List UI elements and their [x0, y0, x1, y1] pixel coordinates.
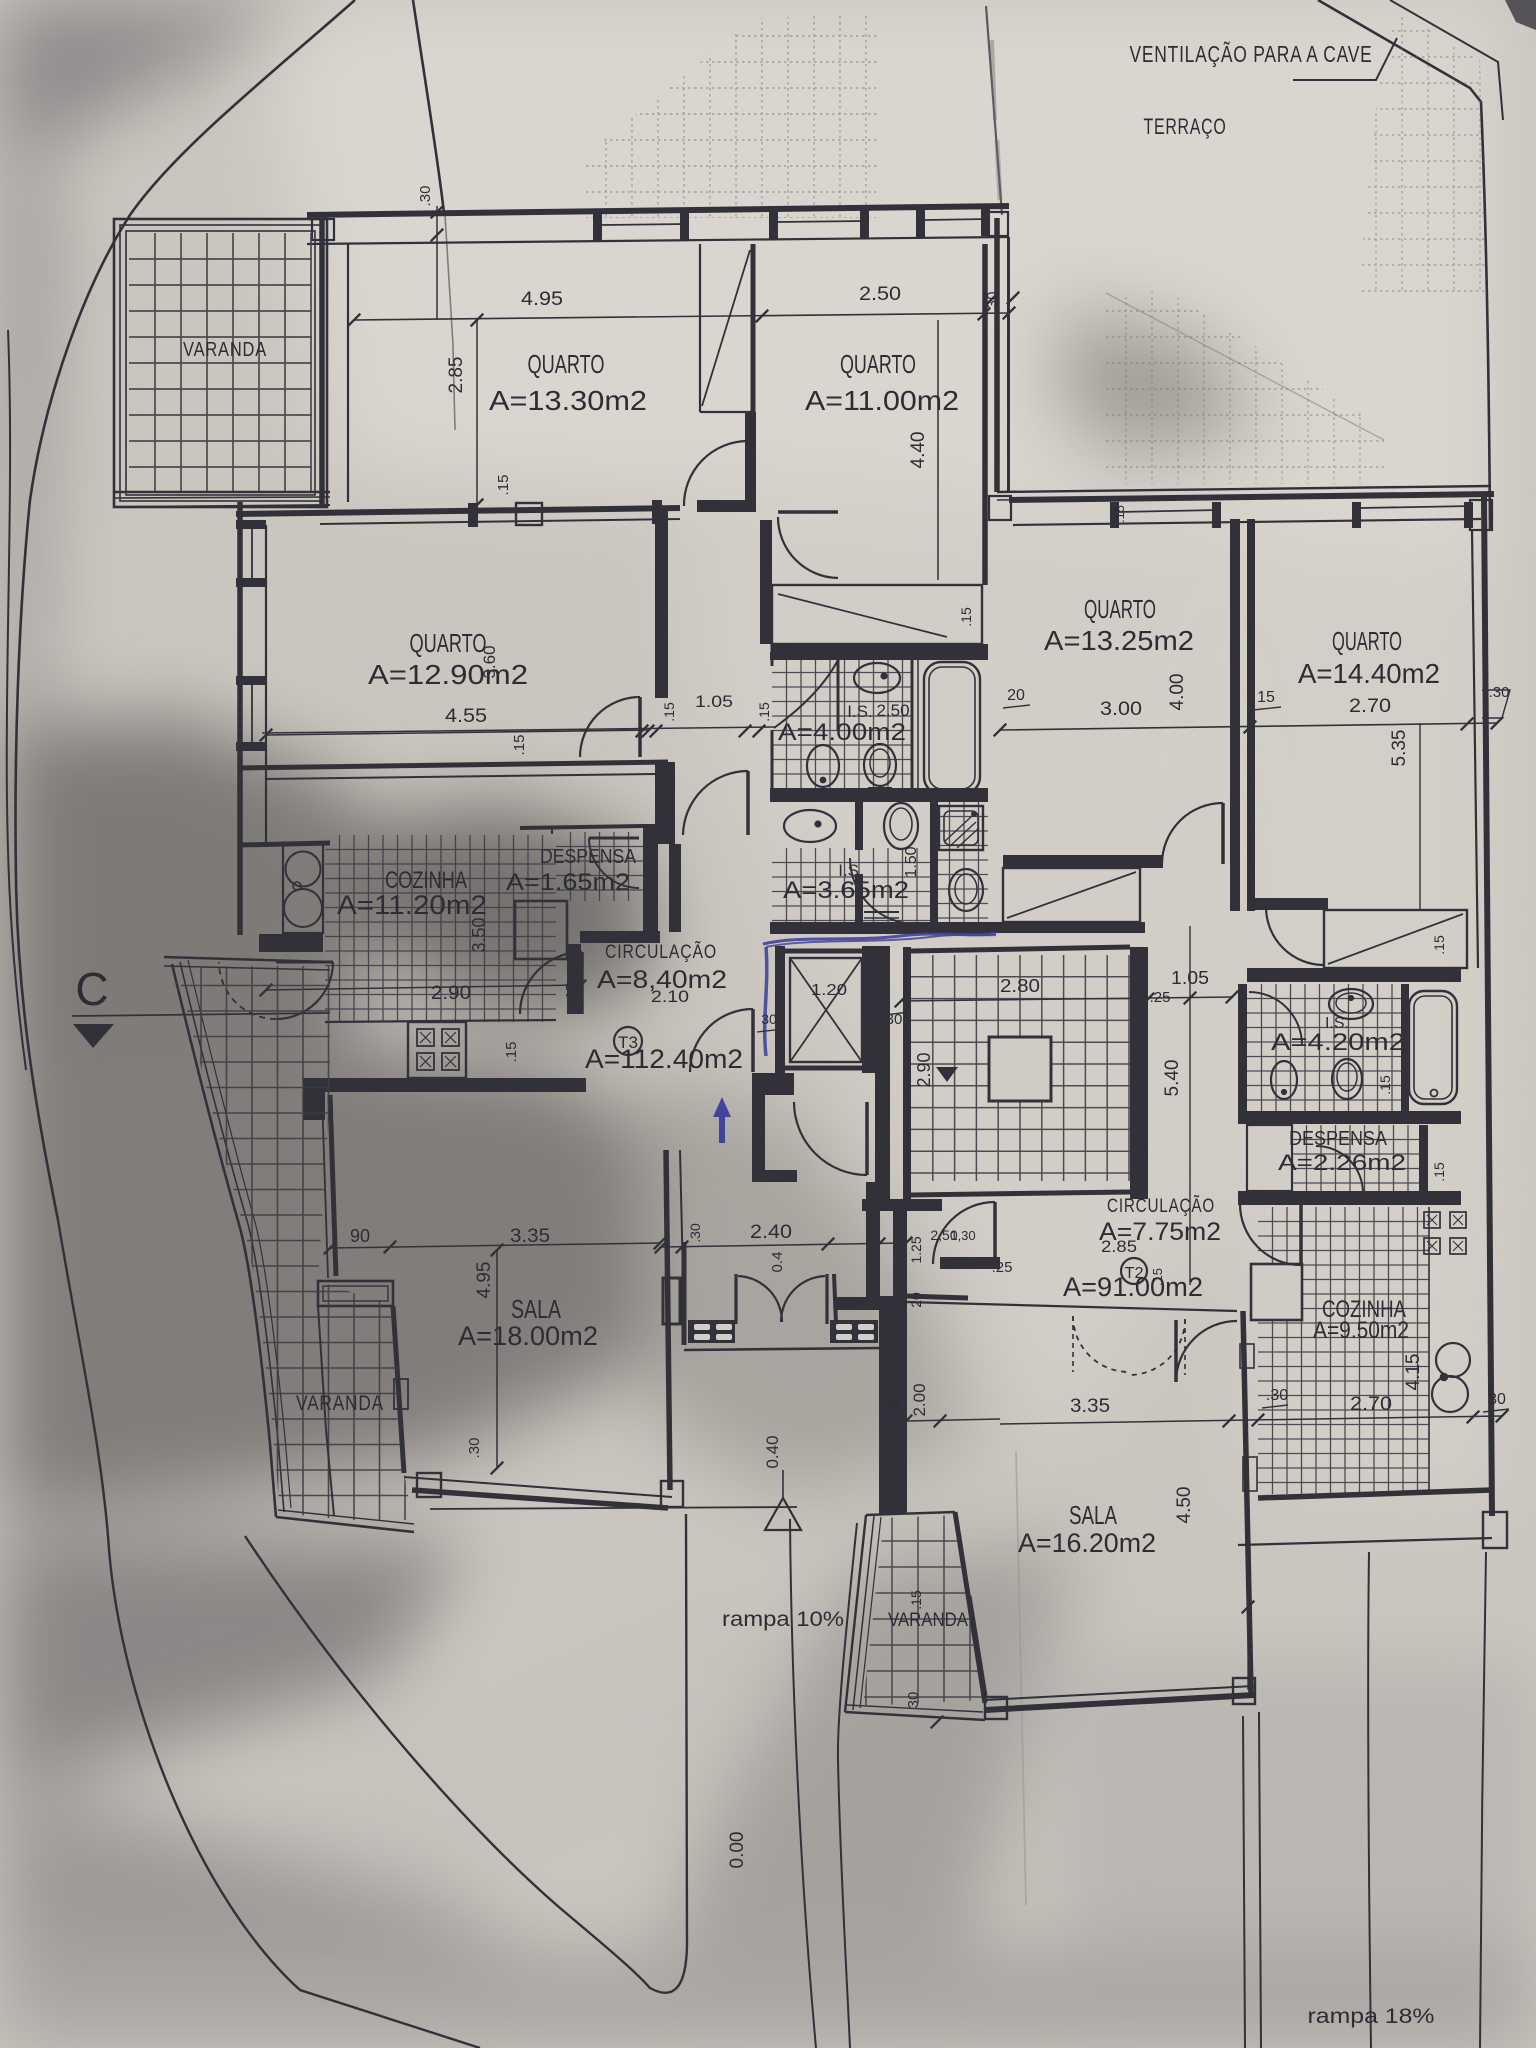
svg-text:A=16.20m2: A=16.20m2	[1018, 1528, 1156, 1558]
svg-text:30: 30	[886, 1396, 903, 1413]
svg-text:VENTILAÇÃO PARA A CAVE: VENTILAÇÃO PARA A CAVE	[1130, 41, 1373, 67]
svg-text:SALA: SALA	[1069, 1500, 1117, 1530]
svg-text:A=12.90m2: A=12.90m2	[368, 659, 528, 690]
svg-text:2.90: 2.90	[914, 1052, 934, 1087]
svg-text:2.85: 2.85	[1101, 1237, 1137, 1256]
svg-text:4.40: 4.40	[908, 432, 929, 469]
svg-text:.15: .15	[503, 1042, 520, 1063]
svg-text:2.70: 2.70	[1350, 1394, 1392, 1415]
svg-text:.25: .25	[1150, 989, 1171, 1006]
svg-text:.15: .15	[661, 702, 677, 722]
svg-text:3.60: 3.60	[480, 645, 499, 678]
svg-text:.15: .15	[958, 607, 974, 627]
svg-text:2.40: 2.40	[750, 1222, 792, 1243]
svg-text:4.95: 4.95	[521, 289, 563, 310]
svg-text:CIRCULAÇÃO: CIRCULAÇÃO	[605, 941, 717, 963]
svg-text:5.40: 5.40	[1162, 1060, 1183, 1097]
svg-text:2.00: 2.00	[910, 1383, 929, 1416]
svg-text:1.25: 1.25	[908, 1236, 924, 1263]
svg-text:QUARTO: QUARTO	[1332, 626, 1402, 656]
svg-text:3.35: 3.35	[1070, 1396, 1110, 1417]
svg-text:VARANDA: VARANDA	[888, 1610, 968, 1631]
svg-text:2.70: 2.70	[1349, 696, 1391, 717]
svg-text:QUARTO: QUARTO	[528, 349, 605, 379]
svg-text:.15: .15	[1112, 505, 1127, 523]
svg-text:VARANDA: VARANDA	[183, 339, 267, 361]
svg-text:.15: .15	[511, 735, 528, 756]
svg-text:3.00: 3.00	[1100, 699, 1142, 720]
svg-text:4.15: 4.15	[1403, 1354, 1424, 1391]
svg-text:5.35: 5.35	[1389, 730, 1410, 767]
svg-text:TERRAÇO: TERRAÇO	[1144, 114, 1227, 139]
svg-text:SALA: SALA	[511, 1294, 561, 1324]
svg-text:A=11.00m2: A=11.00m2	[805, 385, 959, 416]
svg-text:A=11.20m2: A=11.20m2	[337, 890, 487, 920]
svg-text:A=4.00m2: A=4.00m2	[778, 719, 906, 746]
svg-text:.15: .15	[495, 475, 512, 496]
svg-text:.15: .15	[1377, 1075, 1393, 1095]
svg-text:A=9.50m2: A=9.50m2	[1313, 1317, 1409, 1344]
svg-text:A=1.65m2: A=1.65m2	[506, 869, 630, 896]
svg-text:2.50: 2.50	[859, 284, 901, 305]
svg-text:1.50: 1.50	[903, 846, 920, 877]
svg-text:A=18.00m2: A=18.00m2	[458, 1321, 598, 1351]
svg-text:0.40: 0.40	[763, 1435, 782, 1468]
svg-text:A=13.30m2: A=13.30m2	[489, 385, 647, 416]
svg-text:0.00: 0.00	[727, 1832, 748, 1869]
svg-text:.15: .15	[756, 702, 772, 722]
svg-text:15: 15	[1257, 689, 1275, 706]
svg-text:20: 20	[1007, 687, 1025, 704]
svg-text:.30: .30	[687, 1223, 703, 1243]
svg-text:2.85: 2.85	[446, 357, 467, 394]
svg-text:4.55: 4.55	[445, 706, 487, 727]
svg-text:.25: .25	[992, 1259, 1013, 1276]
svg-text:DESPENSA: DESPENSA	[540, 846, 637, 868]
svg-text:QUARTO: QUARTO	[1084, 594, 1156, 624]
svg-text:4.95: 4.95	[474, 1262, 495, 1299]
svg-text:A=91.00m2: A=91.00m2	[1063, 1272, 1203, 1302]
svg-text:3.50: 3.50	[469, 917, 489, 952]
svg-text:30: 30	[761, 1011, 777, 1027]
svg-text:1.20: 1.20	[811, 982, 847, 999]
svg-text:2.10: 2.10	[651, 987, 689, 1006]
svg-text:.15: .15	[1150, 1268, 1165, 1286]
svg-text:1.05: 1.05	[695, 692, 733, 711]
svg-text:.30: .30	[1489, 684, 1510, 701]
svg-text:VARANDA: VARANDA	[296, 1392, 384, 1415]
svg-text:A=3.65m2: A=3.65m2	[783, 877, 909, 904]
svg-text:30: 30	[905, 1692, 922, 1709]
svg-text:A=14.40m2: A=14.40m2	[1298, 658, 1440, 689]
svg-text:DESPENSA: DESPENSA	[1289, 1128, 1388, 1150]
svg-text:1,30: 1,30	[950, 1228, 975, 1243]
svg-text:30: 30	[1488, 1391, 1506, 1408]
svg-text:0.4: 0.4	[769, 1252, 786, 1273]
svg-text:.30: .30	[417, 186, 434, 207]
svg-text:rampa 10%: rampa 10%	[722, 1608, 844, 1631]
svg-text:CIRCULAÇÃO: CIRCULAÇÃO	[1107, 1195, 1215, 1217]
svg-text:A=112.40m2: A=112.40m2	[585, 1044, 743, 1074]
svg-text:QUARTO: QUARTO	[840, 349, 916, 379]
svg-text:2.80: 2.80	[1000, 976, 1040, 996]
svg-text:.15: .15	[1431, 935, 1447, 955]
svg-text:C: C	[75, 963, 108, 1015]
svg-text:QUARTO: QUARTO	[410, 628, 487, 658]
svg-text:2.50: 2.50	[876, 701, 909, 720]
svg-text:.15: .15	[1431, 1162, 1447, 1182]
svg-text:rampa 18%: rampa 18%	[1308, 2005, 1435, 2028]
svg-text:4.00: 4.00	[1167, 674, 1188, 711]
svg-text:.30: .30	[1266, 1387, 1288, 1404]
svg-text:A=4.20m2: A=4.20m2	[1271, 1029, 1405, 1056]
svg-text:A=13.25m2: A=13.25m2	[1044, 625, 1194, 656]
svg-text:90: 90	[350, 1226, 370, 1246]
svg-text:.30: .30	[466, 1438, 483, 1459]
svg-text:4.50: 4.50	[1174, 1487, 1195, 1524]
svg-text:.15: .15	[908, 1590, 924, 1610]
svg-text:3.35: 3.35	[510, 1226, 550, 1247]
